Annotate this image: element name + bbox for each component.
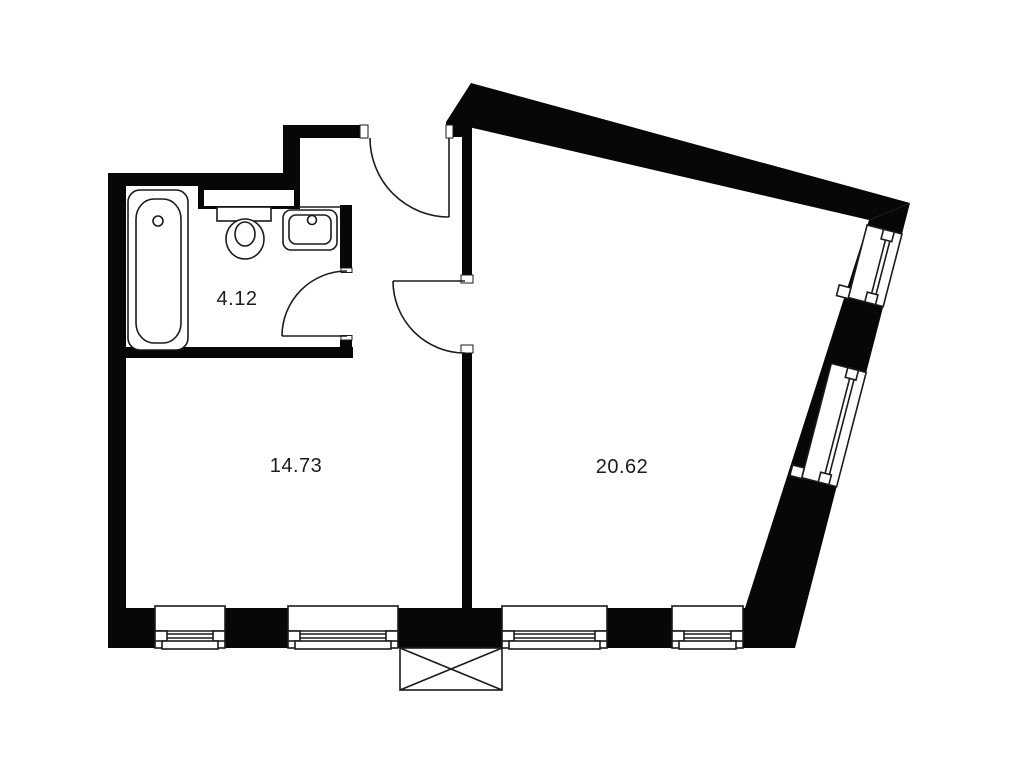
window-cap [595, 631, 607, 641]
bathroom-top-wall [108, 173, 300, 186]
window-sill [295, 641, 391, 649]
floor-plan-drawing: 4.12 14.73 20.62 [0, 0, 1024, 768]
bathtub [128, 190, 188, 350]
bottom-window-3 [502, 606, 607, 649]
bathroom-area-label: 4.12 [217, 288, 258, 310]
window-cap [881, 229, 894, 241]
entry-top-wall [283, 125, 360, 138]
room-right-area-label: 20.62 [596, 456, 649, 478]
window-cap [155, 631, 167, 641]
window-ledge [790, 465, 804, 479]
window-cap [213, 631, 225, 641]
window-sill [162, 641, 218, 649]
divider-wall-upper [462, 120, 472, 275]
entrance-left-jamb [360, 125, 368, 138]
left-wall [108, 173, 126, 648]
window-ledge [836, 285, 850, 299]
window-cap [502, 631, 514, 641]
window-cap [672, 631, 684, 641]
window-cap [845, 368, 858, 380]
bathtub-drain [153, 216, 163, 226]
bottom-window-4 [672, 606, 743, 649]
room-left-area-label: 14.73 [270, 455, 323, 477]
bottom-window-2 [288, 606, 398, 649]
sink-faucet [308, 216, 317, 225]
sink [283, 210, 337, 250]
bottom-window-1 [155, 606, 225, 649]
window-sill [509, 641, 600, 649]
interior-door-bottom-jamb [461, 345, 473, 353]
floor-plan: 4.12 14.73 20.62 [0, 0, 1024, 768]
bathroom-right-wall-upper [340, 205, 352, 268]
entrance-right-jamb [446, 125, 453, 138]
crossed-box-marker [400, 648, 502, 690]
duct-niche [204, 190, 294, 206]
window-sill [679, 641, 736, 649]
divider-wall-lower [462, 353, 472, 608]
window-cap [288, 631, 300, 641]
toilet-bowl-inner [235, 222, 255, 246]
window-cap [386, 631, 398, 641]
window-cap [731, 631, 743, 641]
